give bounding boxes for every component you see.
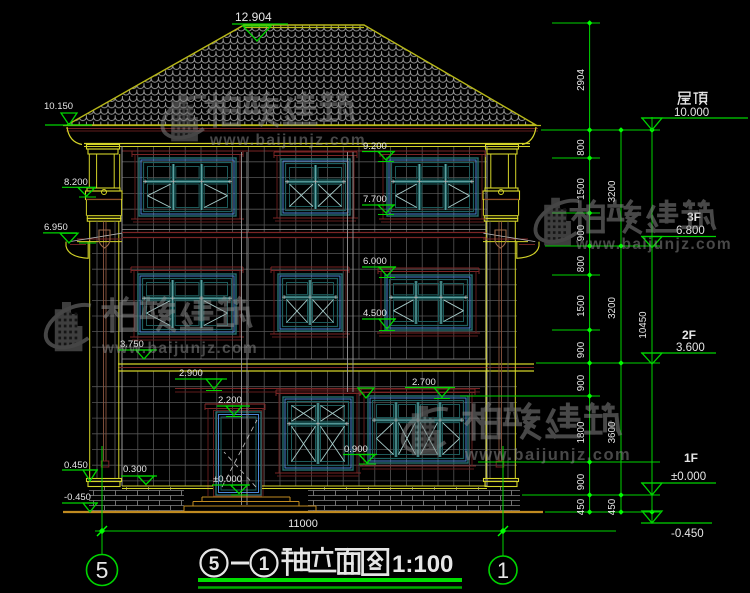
svg-text:1: 1 <box>259 554 270 575</box>
svg-text:2F: 2F <box>682 328 696 342</box>
svg-text:www.baijunjz.com: www.baijunjz.com <box>101 340 258 357</box>
svg-text:5: 5 <box>209 554 220 575</box>
svg-text:1F: 1F <box>684 451 698 465</box>
svg-text:6.950: 6.950 <box>44 222 68 233</box>
svg-text:9.200: 9.200 <box>363 141 387 152</box>
svg-text:11000: 11000 <box>288 518 318 530</box>
svg-text:±0.000: ±0.000 <box>213 474 242 485</box>
svg-text:900: 900 <box>576 374 587 391</box>
svg-text:7.700: 7.700 <box>363 194 387 205</box>
svg-text:-0.450: -0.450 <box>671 528 704 540</box>
svg-text:1:100: 1:100 <box>392 551 453 578</box>
svg-text:10450: 10450 <box>638 311 649 339</box>
svg-text:±0.000: ±0.000 <box>671 471 706 483</box>
svg-text:www.baijunjz.com: www.baijunjz.com <box>575 236 732 253</box>
svg-text:2.700: 2.700 <box>412 377 436 388</box>
svg-text:2.900: 2.900 <box>179 368 203 379</box>
svg-text:900: 900 <box>576 341 587 358</box>
svg-text:www.baijunjz.com: www.baijunjz.com <box>464 446 631 464</box>
svg-text:10.150: 10.150 <box>44 101 73 112</box>
svg-text:2904: 2904 <box>576 69 587 91</box>
svg-text:12.904: 12.904 <box>235 10 272 24</box>
svg-text:0.900: 0.900 <box>344 444 368 455</box>
svg-text:450: 450 <box>607 498 618 515</box>
svg-text:1: 1 <box>497 558 509 583</box>
svg-text:8.200: 8.200 <box>64 177 88 188</box>
svg-text:www.baijunjz.com: www.baijunjz.com <box>209 132 366 149</box>
svg-text:-0.450: -0.450 <box>64 492 91 503</box>
svg-text:6.000: 6.000 <box>363 256 387 267</box>
svg-text:10.000: 10.000 <box>674 107 709 119</box>
svg-text:0.300: 0.300 <box>123 464 147 475</box>
svg-text:900: 900 <box>576 473 587 490</box>
svg-text:4.500: 4.500 <box>363 308 387 319</box>
svg-text:800: 800 <box>576 139 587 156</box>
svg-text:3200: 3200 <box>607 297 618 319</box>
svg-text:800: 800 <box>576 255 587 272</box>
svg-text:3200: 3200 <box>607 180 618 202</box>
svg-text:2.200: 2.200 <box>218 395 242 406</box>
svg-text:450: 450 <box>576 498 587 515</box>
svg-text:1500: 1500 <box>576 295 587 317</box>
svg-text:5: 5 <box>96 557 109 583</box>
svg-text:3.600: 3.600 <box>676 342 705 354</box>
svg-text:1500: 1500 <box>576 178 587 200</box>
